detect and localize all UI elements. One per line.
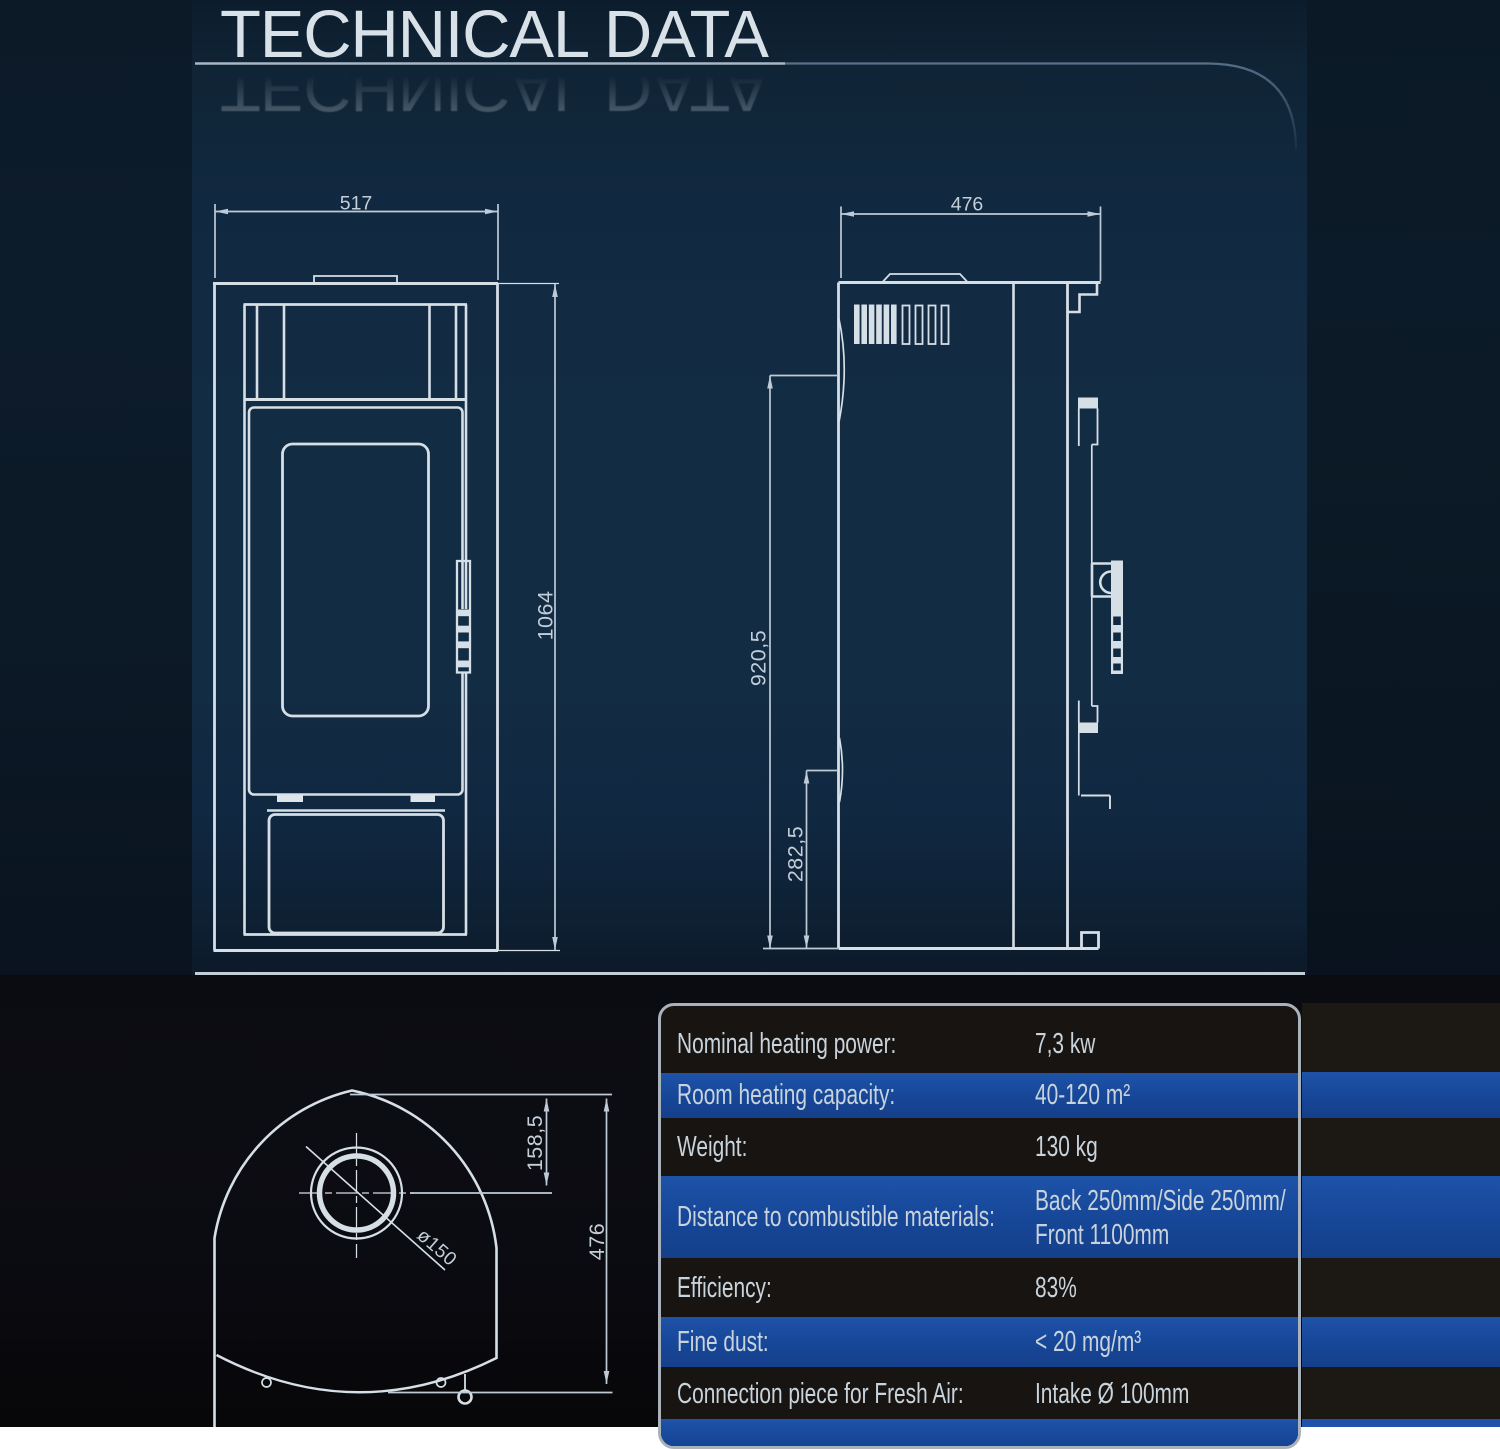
- svg-text:1064: 1064: [534, 591, 558, 641]
- svg-text:476: 476: [585, 1223, 609, 1260]
- svg-text:920,5: 920,5: [747, 630, 771, 686]
- svg-text:282,5: 282,5: [784, 826, 808, 882]
- svg-text:517: 517: [340, 193, 373, 215]
- svg-text:158,5: 158,5: [523, 1115, 547, 1171]
- svg-text:476: 476: [951, 194, 984, 216]
